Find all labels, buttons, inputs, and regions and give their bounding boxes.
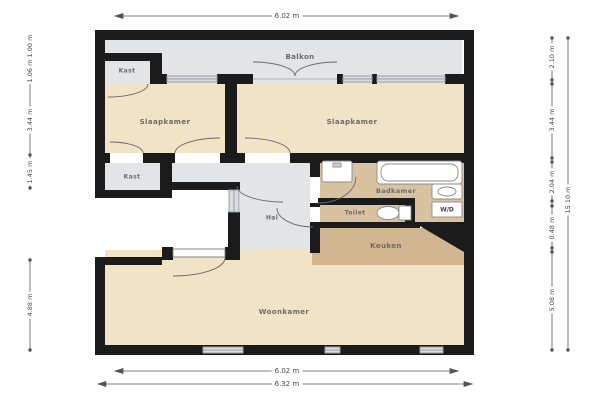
hal-upper-floor [172, 163, 310, 184]
wall-balkon-4 [372, 74, 377, 84]
floor-plan: Balkon Kast Slaapkamer Slaapkamer Kast H… [0, 0, 600, 400]
room-label-slaapkamer-left: Slaapkamer [140, 118, 191, 126]
dim-label-left-1: 1.06 m [26, 58, 34, 85]
room-label-hal: Hal [266, 215, 278, 222]
wall-shaft-1 [228, 182, 240, 190]
room-label-balkon: Balkon [285, 53, 314, 61]
wall-exterior-left-upper [95, 30, 105, 198]
wall-bedroom-bottom-1 [95, 153, 110, 163]
dim-label-left-4: 4.88 m [26, 292, 34, 319]
room-label-slaapkamer-right: Slaapkamer [327, 118, 378, 126]
wall-woonkamer-top-left [95, 257, 162, 265]
dim-arrow [464, 382, 472, 387]
wall-bedroom-bottom-3 [220, 153, 245, 163]
dim-label-right-total: 15.10 m [564, 184, 572, 215]
wall-badkamer-left-1 [310, 163, 320, 177]
room-label-woonkamer: Woonkamer [259, 308, 310, 316]
wall-bedrooms-divider [225, 74, 237, 163]
dim-arrow [450, 14, 458, 19]
dim-label-left-0: 1.00 m [26, 33, 34, 60]
dim-label-bottom-inner: 6.02 m [272, 367, 303, 375]
wall-woonkamer-top-1 [162, 247, 173, 260]
room-label-kast-top: Kast [119, 68, 136, 75]
room-label-wd: W/D [440, 207, 454, 214]
dim-label-right-2: 2.04 m [548, 169, 556, 196]
wall-toilet-top [318, 198, 415, 205]
wall-exterior-bottom [95, 345, 474, 355]
dim-label-bottom-outer: 6.32 m [272, 380, 303, 388]
dim-arrow [115, 14, 123, 19]
room-label-toilet: Toilet [345, 210, 366, 217]
dim-arrow [98, 382, 106, 387]
wall-exterior-top [95, 30, 474, 40]
dim-arrow [450, 369, 458, 374]
wall-balkon-3 [337, 74, 343, 84]
wall-bedroom-bottom-4 [290, 153, 464, 163]
dim-label-right-1: 3.44 m [548, 107, 556, 134]
window-hal-shaft [229, 190, 239, 212]
wall-toilet-bottom [310, 222, 420, 228]
dim-label-left-3: 1.45 m [26, 159, 34, 186]
room-label-badkamer: Badkamer [376, 187, 416, 195]
dim-arrow [115, 369, 123, 374]
dim-label-right-3: 0.48 m [548, 215, 556, 242]
dim-label-right-4: 5.08 m [548, 287, 556, 314]
wall-kast-mid-bottom [95, 190, 172, 198]
room-label-keuken: Keuken [370, 242, 402, 250]
room-label-kast-mid: Kast [124, 174, 141, 181]
dim-label-top: 6.02 m [272, 12, 303, 20]
dim-label-right-0: 2.10 m [548, 44, 556, 71]
wall-exterior-left-lower [95, 257, 105, 355]
woonkamer-floor [105, 250, 464, 350]
dim-label-left-2: 3.44 m [26, 107, 34, 134]
wall-exterior-right [464, 30, 474, 355]
wall-balkon-5 [445, 74, 464, 84]
wall-balkon-1 [150, 74, 167, 84]
wall-bedroom-bottom-2 [143, 153, 175, 163]
wall-badkamer-left-3 [310, 225, 320, 253]
wall-woonkamer-top-2 [225, 247, 240, 260]
